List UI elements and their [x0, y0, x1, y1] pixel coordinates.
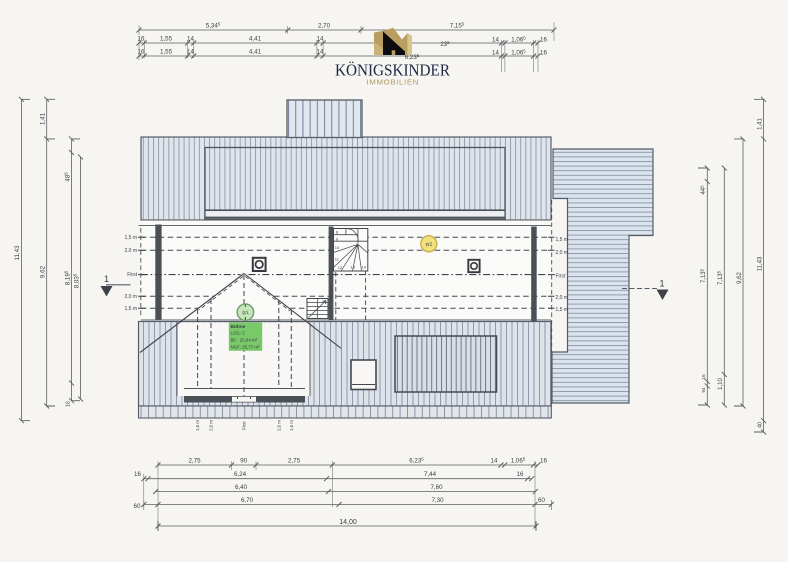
svg-text:16: 16	[138, 36, 145, 43]
svg-text:14: 14	[362, 265, 367, 270]
svg-text:12: 12	[338, 265, 343, 270]
svg-text:11,43: 11,43	[14, 245, 21, 261]
svg-text:BF: 25,84 m²: BF: 25,84 m²	[231, 338, 258, 343]
svg-text:10: 10	[335, 245, 340, 250]
svg-text:IMMOBILIEN: IMMOBILIEN	[367, 78, 420, 87]
svg-text:60: 60	[134, 503, 141, 510]
svg-text:16: 16	[540, 37, 547, 44]
svg-text:4,41: 4,41	[249, 49, 262, 56]
svg-text:1,41: 1,41	[40, 112, 47, 125]
svg-text:14: 14	[317, 49, 324, 56]
svg-text:14: 14	[492, 50, 499, 57]
svg-text:1,5 m: 1,5 m	[124, 306, 137, 312]
svg-text:9,62: 9,62	[40, 265, 47, 278]
svg-text:6,40: 6,40	[235, 484, 248, 491]
svg-text:1: 1	[659, 279, 664, 290]
svg-text:90: 90	[240, 458, 247, 465]
svg-text:1,5 m: 1,5 m	[556, 237, 569, 243]
svg-text:2,0 m: 2,0 m	[556, 250, 569, 256]
svg-text:14: 14	[317, 36, 324, 43]
svg-text:KÖNIGSKINDER: KÖNIGSKINDER	[335, 61, 450, 80]
svg-text:2,0 m: 2,0 m	[276, 420, 281, 431]
svg-text:2,0 m: 2,0 m	[209, 420, 214, 431]
svg-text:14: 14	[187, 36, 194, 43]
svg-text:14: 14	[491, 458, 498, 465]
svg-text:16: 16	[517, 471, 524, 478]
svg-text:16: 16	[540, 50, 547, 57]
svg-text:1,41: 1,41	[758, 118, 764, 130]
svg-text:16: 16	[540, 458, 547, 465]
svg-text:1,5 m: 1,5 m	[124, 235, 137, 241]
svg-text:1,55: 1,55	[160, 49, 173, 56]
svg-text:40: 40	[758, 422, 764, 428]
svg-text:14: 14	[492, 37, 499, 44]
svg-text:2,70: 2,70	[318, 23, 331, 30]
svg-text:1,5 m: 1,5 m	[195, 420, 200, 431]
svg-text:7,44: 7,44	[424, 471, 437, 478]
svg-text:16: 16	[65, 401, 71, 407]
svg-text:16: 16	[134, 471, 141, 478]
svg-text:1,5 m: 1,5 m	[289, 420, 294, 431]
svg-text:94: 94	[701, 387, 707, 393]
svg-text:60: 60	[538, 497, 545, 504]
svg-text:1,5 m: 1,5 m	[556, 307, 569, 313]
svg-text:7,60: 7,60	[430, 484, 443, 491]
svg-text:First: First	[556, 274, 566, 280]
svg-text:2,0 m: 2,0 m	[556, 295, 569, 301]
svg-text:NGF: 25,77 m²: NGF: 25,77 m²	[231, 345, 261, 350]
svg-text:1: 1	[104, 274, 109, 285]
svg-text:1,10: 1,10	[718, 378, 724, 390]
svg-text:1,55: 1,55	[160, 36, 173, 43]
svg-text:2,0 m: 2,0 m	[124, 248, 137, 254]
svg-text:14,00: 14,00	[339, 519, 357, 526]
svg-text:14: 14	[187, 49, 194, 56]
svg-text:Bühne: Bühne	[231, 324, 246, 330]
svg-text:2,0 m: 2,0 m	[124, 294, 137, 300]
svg-text:6,70: 6,70	[241, 497, 254, 504]
svg-text:2,75: 2,75	[288, 458, 301, 465]
svg-text:13: 13	[351, 265, 356, 270]
svg-text:7,30: 7,30	[431, 497, 444, 504]
svg-text:4,41: 4,41	[249, 36, 262, 43]
svg-text:2,75: 2,75	[188, 458, 201, 465]
svg-text:9,62: 9,62	[737, 272, 743, 284]
svg-text:16: 16	[138, 49, 145, 56]
svg-text:6,24: 6,24	[234, 471, 247, 478]
svg-text:LOG: 2: LOG: 2	[231, 331, 246, 336]
svg-text:11,43: 11,43	[758, 256, 764, 271]
svg-text:16: 16	[701, 374, 707, 380]
svg-text:First: First	[242, 421, 247, 430]
svg-text:First: First	[127, 272, 137, 278]
